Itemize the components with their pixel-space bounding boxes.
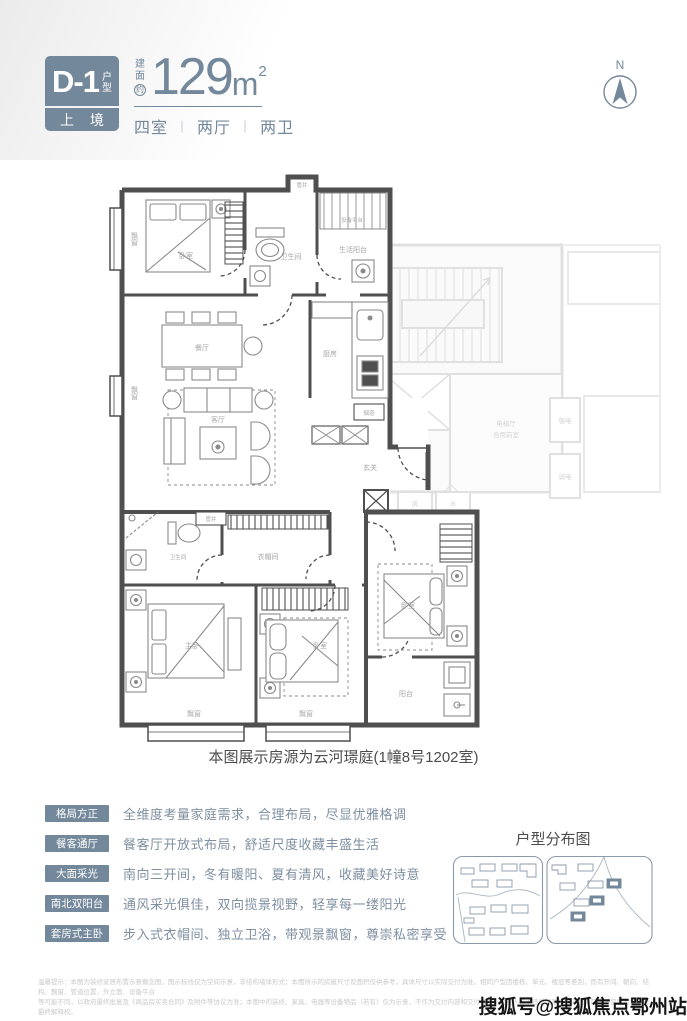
room-label-bed-tl: 卧室: [179, 251, 193, 260]
feature-desc: 南向三开间，冬有暖阳、夏有清风，收藏美好诗意: [123, 864, 420, 883]
room-label-bath-low: 卫生间: [170, 553, 187, 561]
feature-row: 格局方正 全维度考量家庭需求，合理布局，尽显优雅格调: [45, 804, 447, 822]
area-prefix: 建 面 约: [134, 59, 146, 96]
feature-tag: 南北双阳台: [45, 895, 109, 912]
compass-north-label: N: [601, 58, 639, 72]
room-label-elevator-hall: 电梯厅: [496, 419, 516, 428]
plan-caption: 本图展示房源为云河璟庭(1幢8号1202室): [0, 746, 687, 767]
room-label-balcony: 阳台: [399, 689, 413, 698]
room-label-bay-ml: 飘窗: [131, 386, 139, 401]
room-label-foyer: 玄关: [363, 463, 377, 472]
room-label-bay-b2: 飘窗: [299, 709, 313, 718]
area-unit: m: [232, 68, 259, 100]
feature-tag: 大面采光: [45, 865, 109, 882]
unit-code: D-1: [52, 66, 99, 97]
feature-tag: 餐客通厅: [45, 835, 109, 852]
room-label-weak-power: 弱电: [559, 472, 573, 481]
feature-tag: 套房式主卧: [45, 925, 109, 942]
area-block: 建 面 约 129 m 2 四室 ｜ 两厅 ｜ 两卫: [134, 52, 294, 138]
area-exponent: 2: [258, 64, 266, 79]
room-label-shared-lobby: 合用前室: [493, 430, 520, 439]
room-label-kitchen: 厨房: [323, 349, 337, 358]
unit-code-suffix: 户 型: [102, 72, 112, 94]
unit-distribution: 户型分布图: [452, 828, 654, 952]
room-label-strong-power: 强电: [559, 416, 573, 425]
floor-plan: 电梯厅 合用前室 强电 弱电 风 水: [0, 160, 687, 760]
area-divider: [134, 106, 262, 107]
feature-row: 大面采光 南向三开间，冬有暖阳、夏有清风，收藏美好诗意: [45, 864, 447, 882]
feature-list: 格局方正 全维度考量家庭需求，合理布局，尽显优雅格调 餐客通厅 餐客厅开放式布局…: [45, 804, 447, 942]
feature-desc: 通风采光俱佳，双向揽景视野，轻享每一缕阳光: [123, 894, 407, 913]
room-label-bath-top: 卫生间: [281, 252, 302, 261]
distribution-map: [452, 855, 654, 947]
unit-code-box: D-1 户 型: [45, 56, 119, 106]
room-label-dining: 餐厅: [195, 343, 209, 352]
room-label-cloak: 衣帽间: [258, 552, 279, 561]
room-layout: 四室 ｜ 两厅 ｜ 两卫: [134, 114, 294, 138]
feature-row: 套房式主卧 步入式衣帽间、独立卫浴，带观景飘窗，尊崇私密享受: [45, 924, 447, 942]
room-label-bed-mid: 卧室: [313, 641, 327, 650]
room-label-service-balcony: 生活阳台: [339, 245, 367, 254]
room-label-bay-b1: 飘窗: [187, 709, 201, 718]
watermark: 搜狐号@搜狐焦点鄂州站: [478, 992, 687, 1019]
room-label-wind-shaft: 风: [412, 500, 419, 508]
series-name: 上 境: [45, 108, 119, 131]
room-label-flue: 烟道: [363, 409, 375, 417]
room-label-shaft-top: 管井: [296, 181, 308, 189]
compass: N: [601, 58, 639, 115]
distribution-title: 户型分布图: [452, 828, 654, 849]
room-label-bed-right: 卧室: [401, 601, 415, 610]
room-label-master: 主卧: [185, 641, 199, 650]
feature-row: 南北双阳台 通风采光俱佳，双向揽景视野，轻享每一缕阳光: [45, 894, 447, 912]
room-label-equip-platform: 设备平台: [341, 216, 364, 224]
feature-tag: 格局方正: [45, 805, 109, 822]
room-label-living: 客厅: [211, 415, 225, 424]
compass-icon: [602, 74, 638, 110]
room-label-water-shaft: 水: [450, 499, 457, 508]
room-label-shaft-mid: 管井: [205, 515, 217, 523]
room-label-bay-tl: 飘窗: [131, 232, 139, 247]
feature-desc: 步入式衣帽间、独立卫浴，带观景飘窗，尊崇私密享受: [123, 924, 447, 943]
feature-desc: 全维度考量家庭需求，合理布局，尽显优雅格调: [123, 804, 407, 823]
unit-badge: D-1 户 型 上 境: [45, 56, 119, 131]
feature-row: 餐客通厅 餐客厅开放式布局，舒适尺度收藏丰盛生活: [45, 834, 447, 852]
feature-desc: 餐客厅开放式布局，舒适尺度收藏丰盛生活: [123, 834, 380, 853]
area-value: 129: [151, 52, 232, 102]
